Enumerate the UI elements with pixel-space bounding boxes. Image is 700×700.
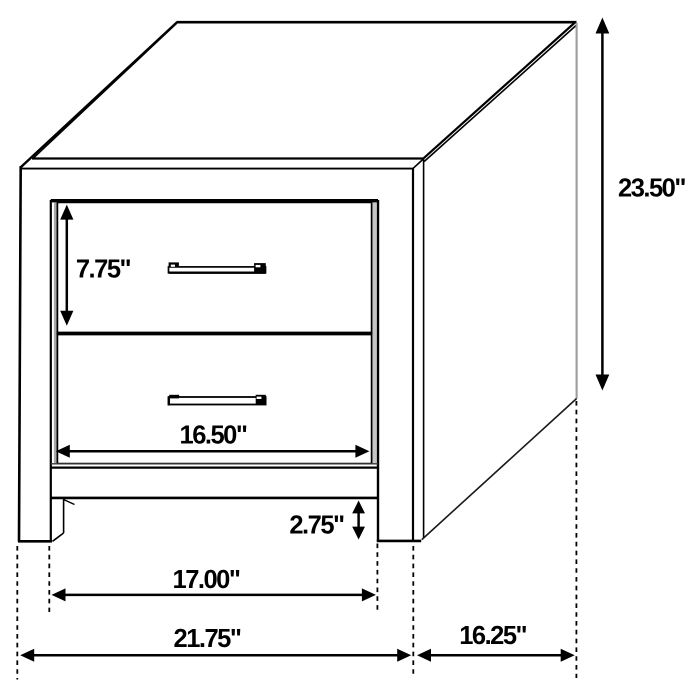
svg-text:17.00": 17.00"	[173, 566, 240, 594]
svg-text:23.50": 23.50"	[618, 175, 685, 203]
svg-text:21.75": 21.75"	[174, 625, 241, 653]
svg-text:7.75": 7.75"	[76, 256, 131, 284]
svg-text:16.50": 16.50"	[180, 421, 247, 449]
svg-text:16.25": 16.25"	[459, 622, 526, 650]
svg-text:2.75": 2.75"	[289, 512, 344, 540]
